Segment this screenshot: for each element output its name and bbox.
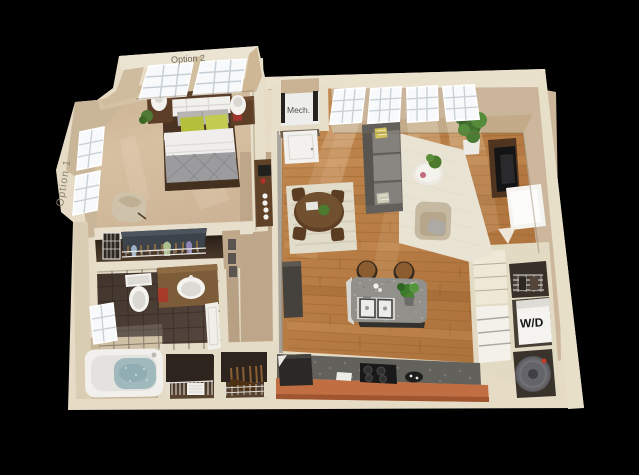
- svg-text:W/D: W/D: [520, 315, 544, 330]
- svg-text:Option 2: Option 2: [171, 53, 206, 65]
- svg-text:Mech.: Mech.: [287, 105, 310, 115]
